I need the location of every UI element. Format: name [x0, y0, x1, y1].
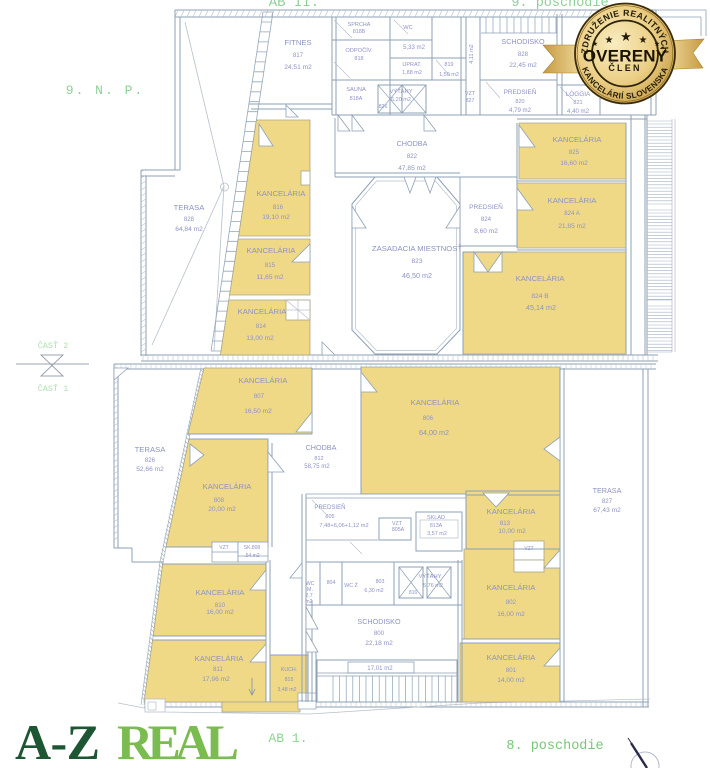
svg-text:820: 820 [515, 99, 524, 105]
svg-text:KANCELÁRIA: KANCELÁRIA [516, 274, 566, 283]
svg-text:818A: 818A [350, 96, 363, 102]
svg-text:9. N. P.: 9. N. P. [66, 83, 144, 98]
svg-text:KANCELÁRIA: KANCELÁRIA [239, 376, 289, 385]
svg-text:5,33 m2: 5,33 m2 [403, 44, 426, 51]
svg-text:REAL: REAL [117, 714, 239, 768]
svg-text:AB 1.: AB 1. [268, 731, 307, 746]
svg-text:824 B: 824 B [531, 293, 549, 300]
svg-text:KANCELÁRIA: KANCELÁRIA [195, 654, 245, 663]
svg-text:52,66 m2: 52,66 m2 [136, 466, 164, 473]
svg-text:808: 808 [214, 497, 225, 504]
svg-text:822: 822 [407, 153, 418, 160]
svg-text:819: 819 [444, 62, 453, 68]
svg-text:800: 800 [374, 630, 385, 637]
svg-text:828: 828 [184, 216, 195, 223]
svg-text:828: 828 [518, 51, 529, 58]
svg-text:.54 m2: .54 m2 [244, 553, 260, 559]
svg-text:823: 823 [411, 258, 422, 265]
svg-text:11,65 m2: 11,65 m2 [256, 274, 283, 281]
svg-text:816: 816 [409, 590, 418, 596]
svg-text:6,20 m2: 6,20 m2 [391, 97, 411, 103]
svg-text:818B: 818B [353, 29, 366, 35]
svg-text:KANCELÁRIA: KANCELÁRIA [257, 189, 307, 198]
svg-text:WC: WC [403, 25, 412, 31]
svg-text:826: 826 [379, 104, 388, 110]
svg-text:TERASA: TERASA [135, 445, 167, 454]
svg-text:8,60 m2: 8,60 m2 [474, 228, 498, 235]
svg-text:WC Ž: WC Ž [344, 581, 358, 589]
svg-text:3,48 m2: 3,48 m2 [277, 687, 296, 693]
svg-text:813A: 813A [430, 523, 443, 529]
svg-text:46,50 m2: 46,50 m2 [402, 271, 432, 280]
svg-text:10,00 m2: 10,00 m2 [498, 528, 526, 535]
svg-text:9. poschodie: 9. poschodie [511, 0, 608, 11]
svg-text:16,60 m2: 16,60 m2 [560, 160, 588, 167]
svg-text:827: 827 [602, 498, 613, 505]
svg-text:KANCELÁRIA: KANCELÁRIA [411, 398, 461, 407]
svg-text:A-Z: A-Z [15, 714, 100, 768]
svg-text:CHODBA: CHODBA [397, 139, 428, 148]
svg-text:22,45 m2: 22,45 m2 [509, 62, 537, 69]
svg-text:22,18 m2: 22,18 m2 [365, 640, 393, 647]
svg-text:SKLAD: SKLAD [427, 515, 445, 521]
svg-text:3,57 m2: 3,57 m2 [427, 531, 447, 537]
svg-text:KUCH.: KUCH. [281, 667, 297, 673]
svg-text:824 A: 824 A [564, 210, 581, 217]
svg-text:805A: 805A [392, 527, 405, 533]
svg-text:816: 816 [273, 204, 284, 211]
svg-text:PREDSIEŇ: PREDSIEŇ [314, 504, 345, 511]
svg-text:KANCELÁRIA: KANCELÁRIA [487, 653, 537, 662]
svg-text:KANCELÁRIA: KANCELÁRIA [487, 507, 537, 516]
svg-text:SCHODISKO: SCHODISKO [357, 617, 401, 626]
svg-text:4,11 m2: 4,11 m2 [469, 44, 475, 63]
svg-text:813: 813 [500, 520, 511, 527]
svg-text:17,01 m2: 17,01 m2 [367, 665, 393, 672]
svg-text:1,88 m2: 1,88 m2 [402, 70, 422, 76]
svg-text:ZASADACIA MIESTNOSŤ: ZASADACIA MIESTNOSŤ [372, 244, 462, 253]
svg-text:KANCELÁRIA: KANCELÁRIA [196, 588, 246, 597]
svg-text:19,10 m2: 19,10 m2 [262, 214, 290, 221]
svg-text:806: 806 [423, 415, 434, 422]
svg-text:45,14 m2: 45,14 m2 [526, 303, 556, 312]
svg-text:SCHODISKO: SCHODISKO [501, 37, 545, 46]
svg-text:ČASŤ 2: ČASŤ 2 [38, 340, 69, 351]
svg-text:m2: m2 [306, 599, 313, 605]
svg-text:KANCELÁRIA: KANCELÁRIA [553, 135, 603, 144]
svg-text:20,00 m2: 20,00 m2 [208, 506, 236, 513]
svg-text:TERASA: TERASA [593, 486, 622, 495]
svg-text:802: 802 [506, 599, 517, 606]
svg-text:CHODBA: CHODBA [306, 443, 337, 452]
svg-text:824: 824 [481, 216, 492, 223]
svg-text:807: 807 [254, 393, 265, 400]
svg-text:58,75 m2: 58,75 m2 [304, 463, 330, 470]
svg-text:VZT: VZT [524, 546, 533, 552]
svg-text:21,85 m2: 21,85 m2 [558, 223, 586, 230]
svg-text:16,50 m2: 16,50 m2 [244, 408, 272, 415]
svg-text:814: 814 [256, 323, 267, 330]
svg-text:VZT: VZT [219, 545, 228, 551]
svg-text:KANCELÁRIA: KANCELÁRIA [548, 196, 598, 205]
svg-text:825: 825 [569, 149, 580, 156]
svg-text:ČLEN: ČLEN [608, 62, 641, 73]
svg-text:4,40 m2: 4,40 m2 [567, 108, 590, 115]
svg-text:24,51 m2: 24,51 m2 [284, 64, 312, 71]
svg-text:KANCELÁRIA: KANCELÁRIA [203, 482, 253, 491]
svg-text:VÝŤAHY: VÝŤAHY [419, 572, 442, 580]
svg-text:TERASA: TERASA [174, 203, 206, 212]
svg-text:PREDSIEŇ: PREDSIEŇ [504, 87, 537, 96]
svg-text:AB II.: AB II. [269, 0, 319, 11]
svg-text:67,43 m2: 67,43 m2 [593, 507, 621, 514]
svg-text:826: 826 [145, 457, 156, 464]
svg-text:815: 815 [265, 262, 276, 269]
svg-text:818: 818 [354, 56, 363, 62]
svg-text:6,30 m2: 6,30 m2 [364, 588, 383, 594]
svg-text:LÓGGIA: LÓGGIA [566, 89, 591, 98]
svg-text:64,84 m2: 64,84 m2 [175, 226, 203, 233]
svg-text:805: 805 [325, 514, 334, 520]
svg-text:VÝŤAHY: VÝŤAHY [390, 87, 413, 95]
svg-text:FITNES: FITNES [284, 38, 311, 47]
svg-text:KANCELÁRIA: KANCELÁRIA [247, 246, 297, 255]
svg-text:14,00 m2: 14,00 m2 [497, 677, 525, 684]
svg-text:KANCELÁRIA: KANCELÁRIA [487, 583, 537, 592]
svg-text:815: 815 [285, 677, 294, 683]
svg-text:PREDSIEŇ: PREDSIEŇ [469, 202, 503, 211]
svg-text:804: 804 [327, 580, 336, 586]
svg-text:817: 817 [293, 52, 304, 59]
svg-text:8. poschodie: 8. poschodie [506, 739, 603, 754]
svg-text:SPRCHA: SPRCHA [348, 22, 371, 28]
svg-text:7,48+6,06+1,12 m2: 7,48+6,06+1,12 m2 [319, 523, 368, 529]
svg-text:17,96 m2: 17,96 m2 [202, 676, 230, 683]
svg-text:47,85 m2: 47,85 m2 [398, 165, 426, 172]
svg-text:5,76 m2: 5,76 m2 [423, 583, 443, 589]
svg-text:4,79 m2: 4,79 m2 [509, 107, 532, 114]
svg-text:801: 801 [506, 667, 517, 674]
svg-text:★: ★ [620, 29, 632, 44]
svg-text:1,50 m2: 1,50 m2 [439, 72, 459, 78]
svg-text:16,00 m2: 16,00 m2 [497, 611, 525, 618]
svg-text:KANCELÁRIA: KANCELÁRIA [238, 307, 288, 316]
svg-text:827: 827 [466, 98, 475, 104]
svg-text:★: ★ [605, 35, 614, 46]
svg-text:SAUNA: SAUNA [346, 87, 366, 93]
svg-text:VZT: VZT [465, 91, 476, 97]
svg-text:810: 810 [215, 602, 226, 609]
svg-text:812: 812 [314, 456, 323, 462]
svg-text:★: ★ [639, 35, 648, 46]
svg-text:SK.808: SK.808 [244, 545, 261, 551]
svg-text:821: 821 [573, 100, 582, 106]
svg-text:13,00 m2: 13,00 m2 [246, 335, 274, 342]
svg-text:16,00 m2: 16,00 m2 [206, 609, 234, 616]
svg-text:811: 811 [213, 666, 223, 673]
svg-text:UPRAT.: UPRAT. [402, 62, 422, 68]
svg-text:ODPOČÍV.: ODPOČÍV. [345, 47, 373, 54]
svg-text:803: 803 [376, 579, 385, 585]
svg-text:64,00 m2: 64,00 m2 [419, 428, 449, 437]
svg-text:ČASŤ 1: ČASŤ 1 [38, 383, 69, 394]
